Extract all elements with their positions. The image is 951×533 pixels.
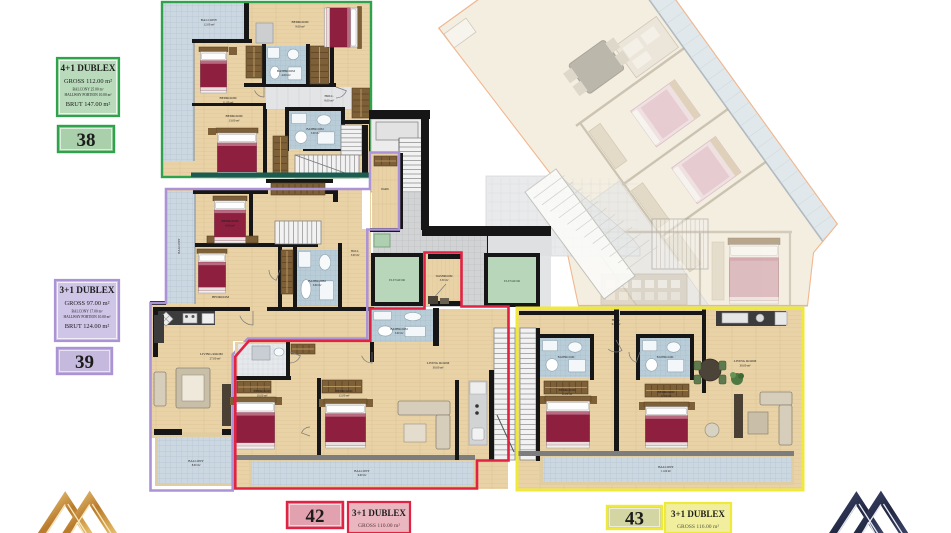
svg-text:GROSS 110.00 m²: GROSS 110.00 m² [358,523,400,529]
svg-text:5.00 m²: 5.00 m² [311,132,320,135]
svg-text:3+1 DUBLEX: 3+1 DUBLEX [671,509,725,519]
svg-text:GROSS 116.00 m²: GROSS 116.00 m² [677,524,719,530]
svg-text:30.00 m²: 30.00 m² [433,366,444,370]
svg-text:BALCONY: BALCONY [354,469,370,473]
svg-text:GROSS 112.00 m²: GROSS 112.00 m² [64,78,112,85]
svg-text:HALLWAY PORTION 10.00 m²: HALLWAY PORTION 10.00 m² [64,93,111,97]
svg-text:BEDROOM: BEDROOM [292,20,309,24]
svg-text:5.00 m²: 5.00 m² [395,332,404,335]
svg-text:BEDROOM: BEDROOM [336,389,353,393]
svg-text:BALCONY 17.00 m²: BALCONY 17.00 m² [72,310,103,314]
svg-text:3+1 DUBLEX: 3+1 DUBLEX [352,508,406,518]
svg-text:12.00 m²: 12.00 m² [204,23,215,27]
svg-text:4.00 m²: 4.00 m² [281,73,290,77]
svg-text:BALCONY: BALCONY [177,238,181,254]
svg-text:BEDROOM: BEDROOM [212,295,229,299]
svg-text:3.50 m²: 3.50 m² [440,279,449,282]
svg-text:WARD.: WARD. [381,188,390,191]
svg-text:13.00 m²: 13.00 m² [229,119,240,123]
svg-text:5.00 m²: 5.00 m² [313,284,322,287]
svg-text:BEDROOM: BEDROOM [220,96,237,100]
svg-text:BATHROOM: BATHROOM [657,355,674,359]
svg-text:11.00 m²: 11.00 m² [562,392,573,396]
svg-text:11.00 m²: 11.00 m² [223,101,234,105]
svg-text:HALLWAY PORTION 10.00 m²: HALLWAY PORTION 10.00 m² [63,315,110,319]
svg-text:9.00 m²: 9.00 m² [295,25,304,29]
svg-text:ELEVATOR: ELEVATOR [504,279,521,283]
svg-text:BEDROOM: BEDROOM [254,389,271,393]
svg-text:42: 42 [306,506,325,527]
svg-text:BEDROOM: BEDROOM [222,219,239,223]
svg-text:LIVING ROOM: LIVING ROOM [427,361,450,365]
svg-text:ELEVATOR: ELEVATOR [389,278,406,282]
svg-text:30.00 m²: 30.00 m² [740,364,751,368]
svg-text:BALCONY 25.00 m²: BALCONY 25.00 m² [73,88,104,92]
svg-text:BALCONY: BALCONY [201,18,218,22]
svg-text:HOLL: HOLL [612,318,621,322]
svg-text:BALCONY: BALCONY [658,465,674,469]
svg-text:BATHROOM: BATHROOM [390,327,408,331]
svg-text:WASHROOM: WASHROOM [436,274,453,278]
svg-text:HOLL: HOLL [324,94,333,98]
svg-text:4+1 DUBLEX: 4+1 DUBLEX [60,63,115,73]
svg-text:11.00 m²: 11.00 m² [661,470,671,473]
svg-text:3+1 DUBLEX: 3+1 DUBLEX [59,285,114,295]
svg-text:38: 38 [77,130,96,151]
svg-text:BRUT 147.00 m²: BRUT 147.00 m² [66,101,111,108]
svg-text:LIVING ROOM: LIVING ROOM [734,359,757,363]
svg-text:BATHROOM: BATHROOM [558,355,575,359]
svg-text:39: 39 [75,352,94,373]
svg-text:10.00 m²: 10.00 m² [257,394,268,398]
svg-text:BATHROOM: BATHROOM [308,279,326,283]
svg-text:12.00 m²: 12.00 m² [339,394,350,398]
svg-text:5.00 m²: 5.00 m² [351,254,360,257]
svg-text:9.00 m²: 9.00 m² [612,323,621,326]
svg-text:27.00 m²: 27.00 m² [210,357,221,361]
svg-text:8.00 m²: 8.00 m² [192,464,201,467]
svg-text:LIVING ROOM: LIVING ROOM [200,352,223,356]
svg-text:HOLL: HOLL [351,249,360,253]
svg-text:BRUT 124.00 m²: BRUT 124.00 m² [65,323,110,330]
svg-text:BATHROOM: BATHROOM [306,127,324,131]
svg-text:11.00 m²: 11.00 m² [661,394,672,398]
svg-text:BALCONY: BALCONY [188,459,204,463]
svg-text:GROSS 97.00 m²: GROSS 97.00 m² [64,300,109,307]
svg-text:43: 43 [625,509,644,530]
svg-text:BEDROOM: BEDROOM [226,114,243,118]
svg-text:9.00 m²: 9.00 m² [358,474,367,477]
svg-text:8.00 m²: 8.00 m² [324,99,333,103]
svg-text:9.00 m²: 9.00 m² [225,224,234,228]
